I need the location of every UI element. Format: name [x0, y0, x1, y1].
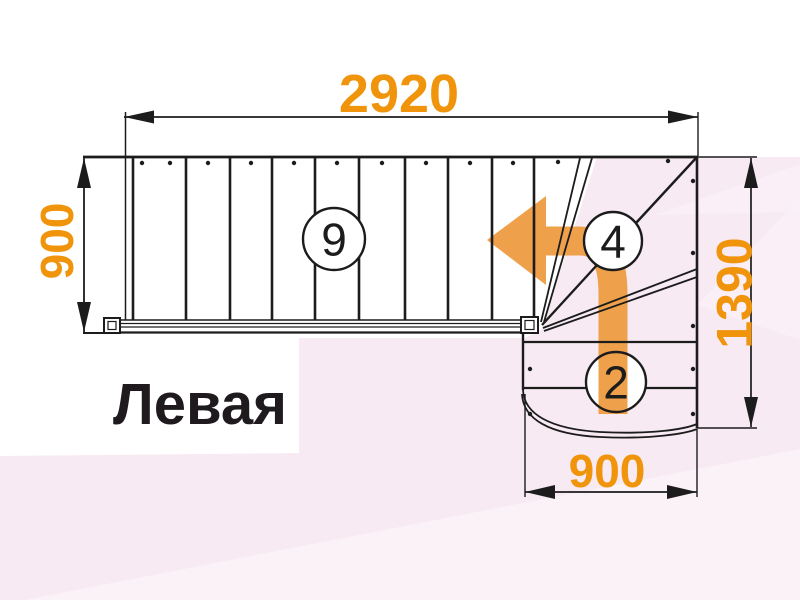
dim-bottom-label: 900 — [569, 445, 646, 497]
bottom-flight-count: 2 — [603, 357, 629, 409]
newel-post-left — [104, 318, 120, 333]
dim-top-label: 2920 — [339, 64, 459, 124]
newel-post-center — [521, 317, 538, 333]
plan-title: Левая — [113, 372, 287, 437]
straight-flight-count: 9 — [321, 214, 347, 266]
dim-left-label: 900 — [31, 203, 83, 280]
dim-right-label: 1390 — [707, 237, 763, 348]
stair-plan-page: 9 4 2 2920 900 1390 900 Левая — [0, 0, 800, 600]
winder-flight-count: 4 — [600, 216, 626, 268]
staircase-plan-svg: 9 4 2 2920 900 1390 900 Левая — [0, 0, 800, 600]
